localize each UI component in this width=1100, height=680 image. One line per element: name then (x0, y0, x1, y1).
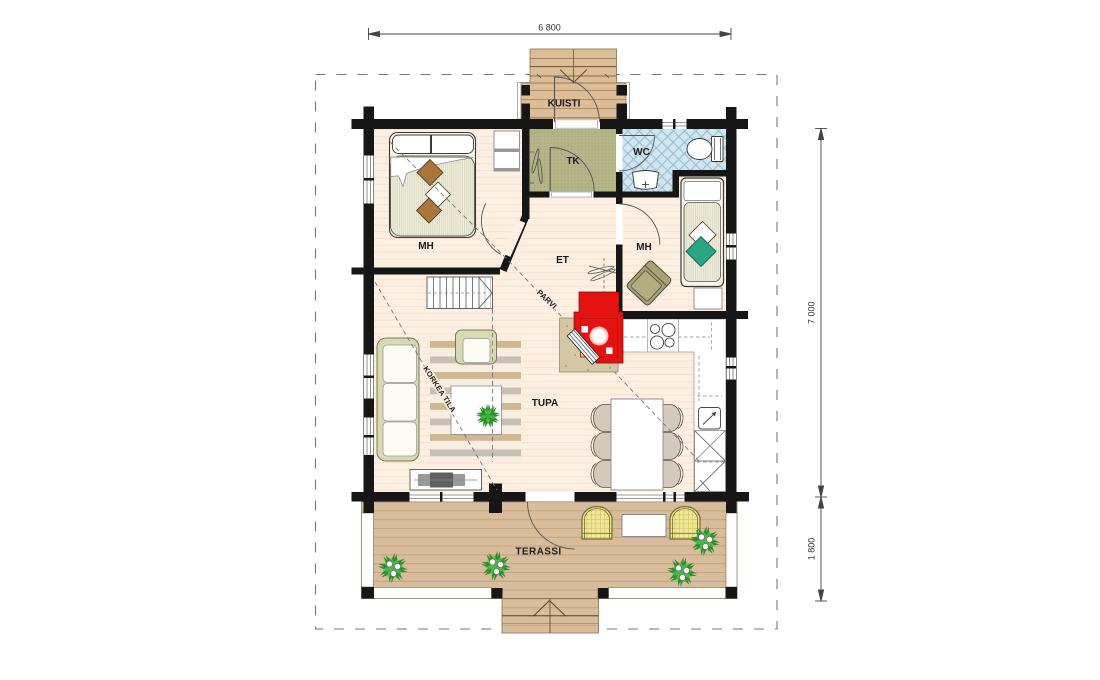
svg-text:WC: WC (633, 147, 650, 158)
svg-text:MH: MH (418, 241, 434, 252)
svg-text:TK: TK (566, 156, 580, 167)
svg-text:KUISTI: KUISTI (548, 99, 581, 110)
svg-text:ET: ET (556, 255, 569, 266)
svg-text:6 800: 6 800 (538, 23, 561, 33)
svg-text:7 000: 7 000 (807, 302, 817, 325)
svg-text:1 800: 1 800 (807, 538, 817, 561)
svg-text:TERASSI: TERASSI (515, 547, 561, 558)
svg-text:TUPA: TUPA (532, 398, 558, 409)
svg-text:MH: MH (636, 242, 652, 253)
